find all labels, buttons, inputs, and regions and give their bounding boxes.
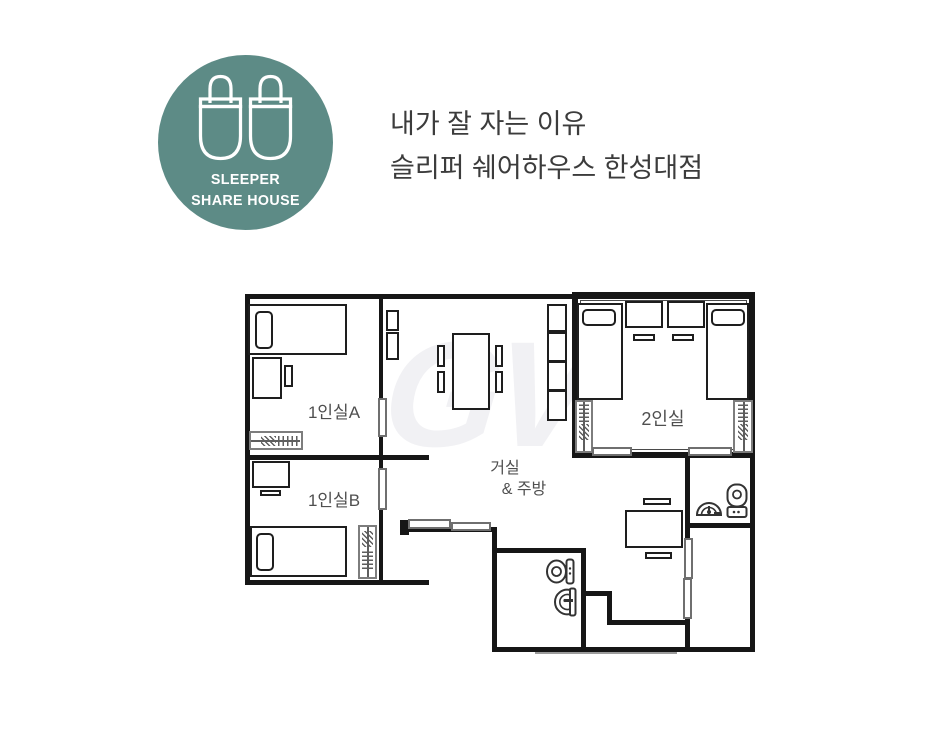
label-twin-room: 2인실 xyxy=(630,405,696,431)
dining-chair-1 xyxy=(437,345,445,367)
keyboard-roomB xyxy=(260,490,281,496)
toilet-icon xyxy=(545,557,575,586)
hall-table xyxy=(625,510,683,548)
dining-table xyxy=(452,333,490,410)
dining-chair-2 xyxy=(437,371,445,393)
kitchen-cabinet-3 xyxy=(547,361,567,391)
wall-bathroom-center-top xyxy=(494,548,586,553)
logo-text-line2: SHARE HOUSE xyxy=(162,192,328,209)
wall-bathroom-center-right xyxy=(581,548,586,652)
wardrobe-line xyxy=(743,402,745,451)
door-roomA xyxy=(378,398,387,437)
label-roomB: 1인실B xyxy=(299,486,369,511)
label-living-line1: 거실 xyxy=(460,458,550,479)
door-hall-2 xyxy=(683,578,692,619)
shelf-living-1 xyxy=(386,310,399,331)
dining-chair-3 xyxy=(495,345,503,367)
label-roomA: 1인실A xyxy=(299,398,369,423)
label-living-line2: & 주방 xyxy=(479,479,569,500)
kitchen-cabinet-2 xyxy=(547,332,567,362)
pillow-roomB xyxy=(256,533,274,571)
wall-bathroom-right-bottom xyxy=(685,523,755,528)
door-roomB xyxy=(378,468,387,510)
toilet-icon xyxy=(726,483,748,519)
stool-twin-1 xyxy=(633,334,655,341)
wall-left-bottom xyxy=(245,580,429,585)
slippers-icon xyxy=(198,74,293,161)
wall-entry-step3 xyxy=(607,620,690,625)
door-bathroom-right xyxy=(688,447,732,456)
sink-icon xyxy=(552,587,577,617)
wardrobe-twin-left xyxy=(575,400,593,453)
logo-text-line1: SLEEPER xyxy=(162,171,328,188)
wall-rooms-right xyxy=(379,294,383,585)
wardrobe-line xyxy=(583,402,585,451)
headline: 내가 잘 자는 이유 슬리퍼 쉐어하우스 한성대점 xyxy=(390,102,703,190)
label-living: 거실 & 주방 xyxy=(460,458,550,500)
kitchen-cabinet-1 xyxy=(547,304,567,332)
door-living-1 xyxy=(408,519,451,529)
headline-line1: 내가 잘 자는 이유 xyxy=(390,102,703,146)
dining-chair-4 xyxy=(495,371,503,393)
pillow-roomA xyxy=(255,311,273,349)
desk-roomB xyxy=(252,461,290,488)
shadow-line xyxy=(535,652,677,654)
desk-twin-2 xyxy=(667,301,705,328)
chair-roomA xyxy=(284,365,293,387)
door-twin-room xyxy=(592,447,632,456)
sink-icon xyxy=(695,495,723,519)
rack-line xyxy=(251,440,300,442)
pillow-twin-right xyxy=(711,309,745,326)
desk-roomA xyxy=(252,357,282,399)
wardrobe-twin-right xyxy=(733,400,753,453)
shoe-rack-roomA xyxy=(249,431,303,450)
wall-right-lower xyxy=(750,453,755,652)
wall-roomA-roomB-divider xyxy=(245,455,429,460)
hall-chair-top xyxy=(643,498,671,505)
kitchen-cabinet-4 xyxy=(547,390,567,421)
door-hall-1 xyxy=(684,538,693,579)
wardrobe-roomB xyxy=(358,525,377,579)
shelf-living-2 xyxy=(386,332,399,360)
hall-chair-bottom xyxy=(645,552,672,559)
floor-plan: GV xyxy=(245,290,757,658)
headline-line2: 슬리퍼 쉐어하우스 한성대점 xyxy=(390,146,703,190)
desk-twin-1 xyxy=(625,301,663,328)
door-living-2 xyxy=(451,522,491,531)
pillow-twin-left xyxy=(582,309,616,326)
wall-bathroom-center-left xyxy=(492,527,497,652)
logo-badge: SLEEPER SHARE HOUSE xyxy=(158,55,333,230)
stool-twin-2 xyxy=(672,334,694,341)
wardrobe-line xyxy=(367,527,369,577)
